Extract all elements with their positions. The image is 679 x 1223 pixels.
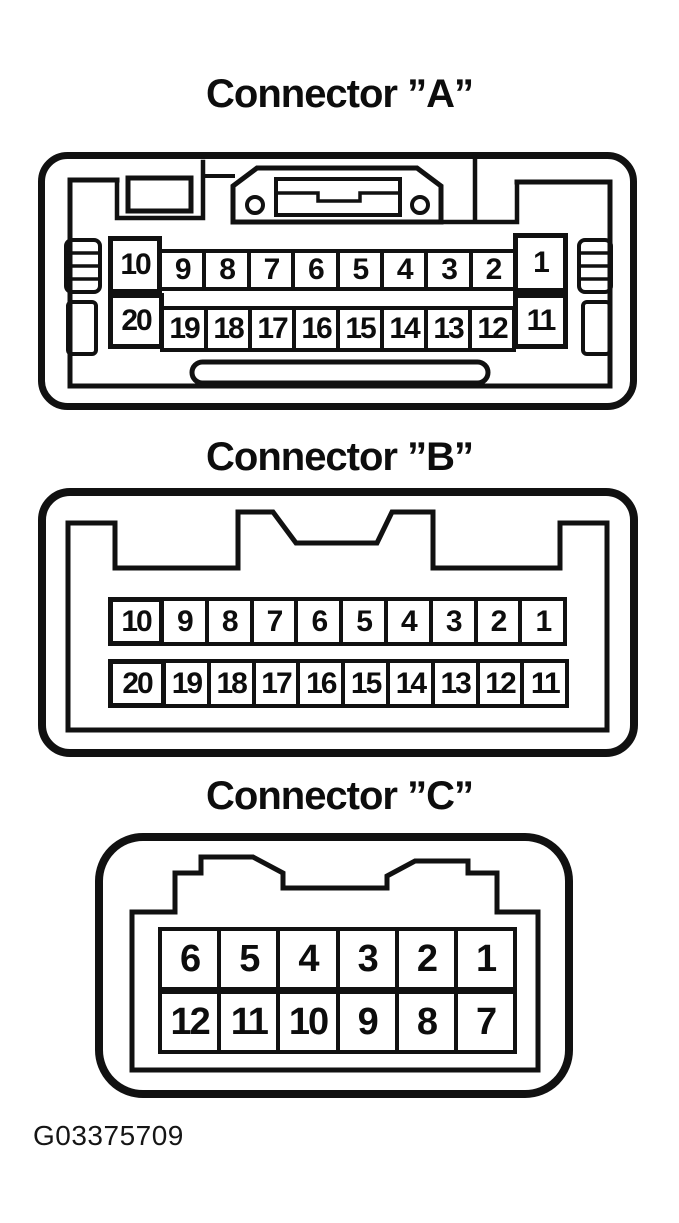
connector-c-pin-6: 6 — [158, 927, 221, 991]
connector-b-pin-9: 9 — [160, 597, 209, 646]
side-slot-right — [583, 302, 610, 354]
connector-a-bottom-slot — [192, 362, 488, 383]
latch-hole-left — [247, 197, 263, 213]
connector-a-pin-13: 13 — [424, 306, 472, 352]
connector-a-pin-10: 10 — [108, 236, 162, 294]
connector-a-pin-5: 5 — [336, 249, 384, 291]
connector-a-pin-4: 4 — [380, 249, 428, 291]
connector-a-pin-7: 7 — [247, 249, 295, 291]
connector-b-pin-5: 5 — [339, 597, 388, 646]
connector-b-pin-7: 7 — [250, 597, 299, 646]
connector-b-title: Connector ”B” — [0, 435, 679, 479]
connector-a-pin-20: 20 — [108, 293, 164, 349]
connector-a-pin-17: 17 — [248, 306, 296, 352]
connector-a-ledge-right — [441, 160, 517, 222]
connector-a-pin-12: 12 — [468, 306, 516, 352]
connector-c-title: Connector ”C” — [0, 774, 679, 818]
connector-b-pin-6: 6 — [294, 597, 343, 646]
connector-b-pin-15: 15 — [341, 659, 390, 708]
connector-a-key-block — [128, 178, 191, 211]
connector-c-pin-10: 10 — [276, 990, 339, 1054]
connector-b-pin-4: 4 — [384, 597, 433, 646]
connector-a-pin-11: 11 — [513, 293, 568, 349]
connector-a-pin-2: 2 — [469, 249, 517, 291]
connector-c-pin-11: 11 — [217, 990, 280, 1054]
connector-a-pin-9: 9 — [158, 249, 206, 291]
connector-b-pin-3: 3 — [429, 597, 478, 646]
connector-c-pin-3: 3 — [336, 927, 399, 991]
latch-inner-plate — [276, 179, 400, 215]
connector-b-pin-19: 19 — [162, 659, 211, 708]
connector-c-pin-4: 4 — [276, 927, 339, 991]
connector-b-pin-14: 14 — [386, 659, 435, 708]
connector-c-pin-12: 12 — [158, 990, 221, 1054]
connector-b-pin-13: 13 — [431, 659, 480, 708]
figure-id: G03375709 — [33, 1120, 184, 1152]
connector-a-pin-14: 14 — [380, 306, 428, 352]
connector-c-pin-8: 8 — [395, 990, 458, 1054]
latch-step-line — [276, 193, 400, 201]
connector-b-pin-18: 18 — [207, 659, 256, 708]
connector-b-pin-10: 10 — [108, 597, 164, 646]
connector-b-pin-1: 1 — [518, 597, 567, 646]
connector-a-pin-16: 16 — [292, 306, 340, 352]
connector-a-pin-19: 19 — [160, 306, 208, 352]
connector-b-pin-16: 16 — [296, 659, 345, 708]
connector-b-pin-20: 20 — [108, 659, 166, 708]
connector-a-pin-18: 18 — [204, 306, 252, 352]
connector-a-pin-1: 1 — [513, 233, 568, 293]
connector-b-pin-12: 12 — [476, 659, 525, 708]
connector-a-title: Connector ”A” — [0, 72, 679, 116]
connector-c-pin-9: 9 — [336, 990, 399, 1054]
connector-b-pin-2: 2 — [474, 597, 523, 646]
connector-a-pin-8: 8 — [202, 249, 250, 291]
connector-b-pin-11: 11 — [520, 659, 569, 708]
side-contact-right-ribs — [581, 253, 609, 279]
connector-c-pin-2: 2 — [395, 927, 458, 991]
connector-c-pin-7: 7 — [454, 990, 517, 1054]
connector-a-pin-6: 6 — [291, 249, 339, 291]
connector-c-pin-1: 1 — [454, 927, 517, 991]
connector-c-pin-5: 5 — [217, 927, 280, 991]
diagram-page: Connector ”A” Connector ”B” Connector ”C… — [0, 0, 679, 1223]
latch-hole-right — [412, 197, 428, 213]
connector-b-pin-8: 8 — [205, 597, 254, 646]
connector-a-pin-15: 15 — [336, 306, 384, 352]
connector-b-pin-17: 17 — [252, 659, 301, 708]
connector-a-pin-3: 3 — [424, 249, 472, 291]
